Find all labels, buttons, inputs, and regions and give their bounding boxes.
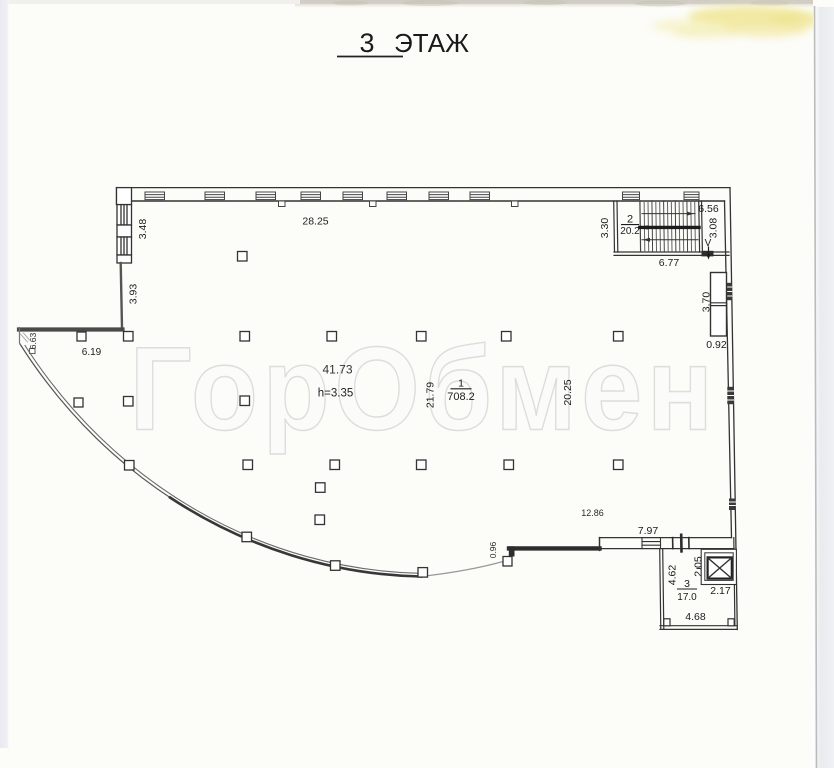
svg-text:3.70: 3.70 [701,292,713,313]
svg-text:6.19: 6.19 [82,347,102,358]
svg-text:28.25: 28.25 [302,216,328,228]
svg-text:h=3.35: h=3.35 [318,388,354,400]
svg-text:3: 3 [359,28,374,58]
svg-text:6.63: 6.63 [28,332,38,349]
svg-text:3.93: 3.93 [128,284,140,305]
svg-text:20.2: 20.2 [620,226,640,237]
svg-text:3.08: 3.08 [708,218,720,239]
svg-text:20.25: 20.25 [562,379,574,405]
svg-text:6.77: 6.77 [659,257,680,269]
svg-text:21.79: 21.79 [425,382,437,408]
svg-text:ЭТАЖ: ЭТАЖ [394,28,469,58]
svg-text:2: 2 [627,214,633,226]
svg-text:41.73: 41.73 [322,363,352,377]
svg-text:17.0: 17.0 [677,592,697,603]
svg-text:3.30: 3.30 [599,218,611,239]
svg-text:0.92: 0.92 [706,339,727,351]
svg-text:2.17: 2.17 [710,585,731,597]
svg-text:4.68: 4.68 [685,611,706,623]
svg-text:6.56: 6.56 [698,203,719,215]
svg-text:12.86: 12.86 [581,508,604,518]
svg-text:3.48: 3.48 [137,219,149,240]
svg-text:708.2: 708.2 [447,391,475,403]
svg-text:1: 1 [458,378,464,390]
svg-text:0.96: 0.96 [488,541,498,558]
svg-text:3: 3 [684,578,690,590]
svg-text:7.97: 7.97 [638,525,659,537]
svg-text:4.62: 4.62 [667,565,679,586]
